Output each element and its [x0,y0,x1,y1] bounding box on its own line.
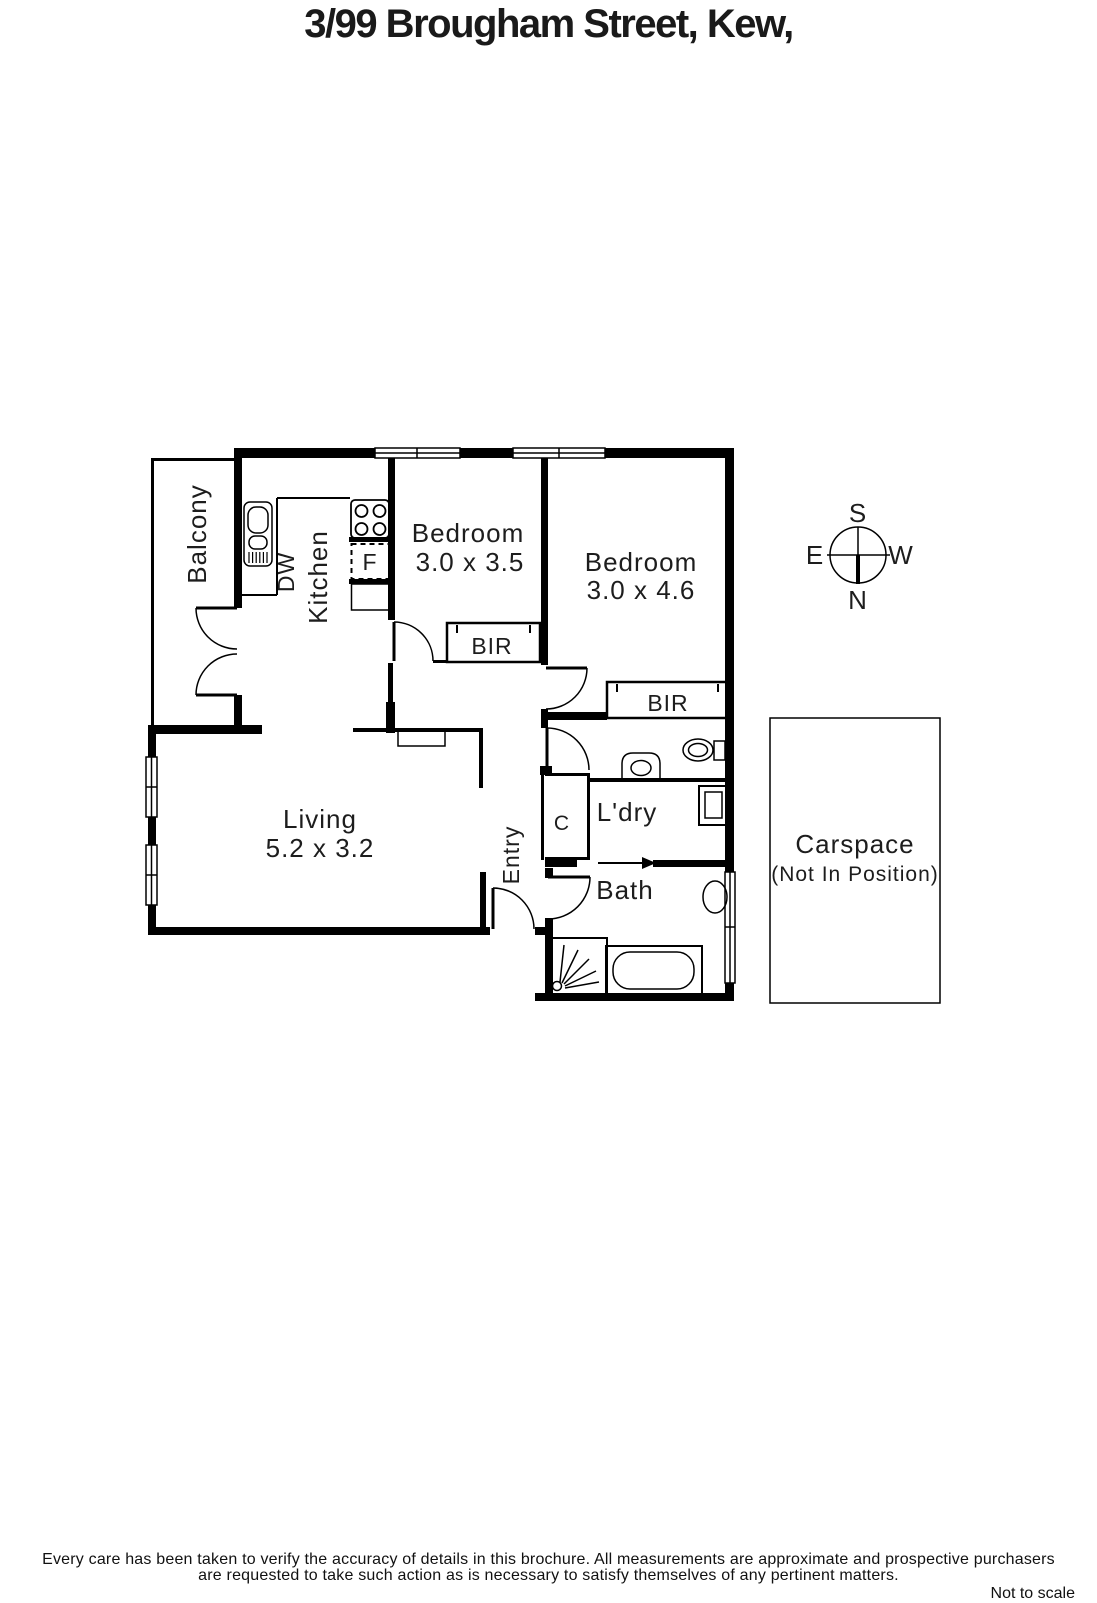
doors [196,608,656,929]
bath-door [548,877,590,919]
laundry-opening-arrow [598,857,656,869]
pantry-box [352,584,390,610]
dishwasher-label: DW [273,552,299,592]
window-living-2 [146,845,157,905]
bathtub-icon [606,946,702,995]
disclaimer: Every care has been taken to verify the … [0,1552,1097,1583]
carspace-note: (Not In Position) [771,863,939,886]
carspace-label: Carspace [795,829,914,859]
compass-north: N [848,585,868,615]
bedroom2-dims: 3.0 x 4.6 [587,575,696,605]
disclaimer-line2: are requested to take such action as is … [0,1568,1097,1584]
bedroom2-label: Bedroom [585,547,698,577]
bir2-label: BIR [647,690,688,716]
bedroom1-door [394,622,433,661]
balcony-label: Balcony [182,484,212,584]
window-living-1 [146,757,157,817]
wc-door [547,728,589,770]
wc-basin-icon [622,753,660,780]
compass-icon: S N E W [806,498,914,615]
kitchen-label: Kitchen [303,530,333,624]
laundry-label: L'dry [597,797,658,827]
bir1-label: BIR [471,633,512,659]
entry-door [493,888,534,929]
wc-toilet-icon [683,739,725,761]
window-bedroom1 [375,448,460,458]
compass-west: W [888,540,914,570]
sink-icon [244,502,272,566]
window-bath [725,872,735,983]
washing-machine-icon [699,786,727,825]
bedroom1-dims: 3.0 x 3.5 [416,547,525,577]
scale-note: Not to scale [991,1585,1075,1603]
stove-icon [351,500,389,538]
bedroom2-door [546,668,587,709]
living-dims: 5.2 x 3.2 [266,833,375,863]
disclaimer-line1: Every care has been taken to verify the … [0,1552,1097,1568]
cupboard-label: C [554,812,570,835]
room-labels: Balcony DW Kitchen F Bedroom 3.0 x 3.5 B… [182,484,697,905]
shower-icon [549,938,607,994]
fridge-label: F [362,549,377,575]
window-bedroom2 [513,448,605,458]
carspace: Carspace (Not In Position) [770,718,940,1003]
compass-east: E [806,540,824,570]
floorplan: Carspace (Not In Position) S N E W Balco… [0,0,1097,1600]
entry-label: Entry [498,826,524,885]
bedroom1-label: Bedroom [412,518,525,548]
bath-basin-icon [703,881,727,913]
compass-south: S [849,498,867,528]
living-label: Living [283,804,357,834]
bath-label: Bath [596,875,654,905]
balcony-french-doors [196,608,237,695]
